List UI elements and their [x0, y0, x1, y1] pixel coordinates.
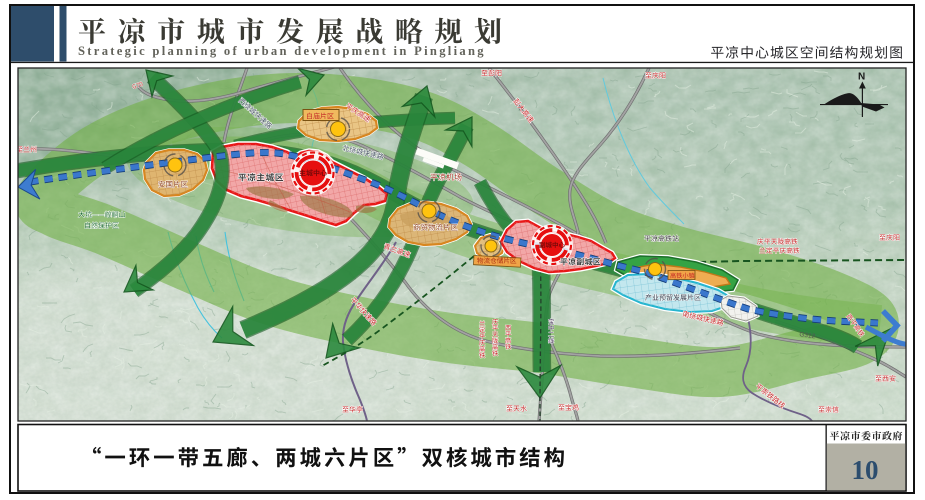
svg-text:N: N: [858, 72, 865, 83]
svg-text:Strategic planning of urban de: Strategic planning of urban development …: [78, 44, 486, 58]
svg-text:10: 10: [852, 455, 879, 485]
